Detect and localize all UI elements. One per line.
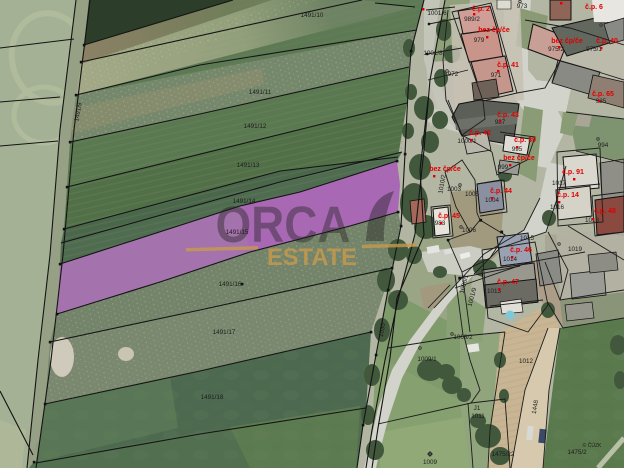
svg-text:1491/16: 1491/16 bbox=[219, 281, 242, 288]
svg-text:1019: 1019 bbox=[568, 246, 583, 253]
svg-text:972: 972 bbox=[448, 71, 459, 78]
svg-text:č.p. 48: č.p. 48 bbox=[594, 208, 616, 215]
svg-text:bez čp/če: bez čp/če bbox=[429, 166, 461, 173]
svg-text:č.p. 39: č.p. 39 bbox=[514, 137, 536, 144]
svg-text:č.p. 46: č.p. 46 bbox=[510, 247, 532, 254]
svg-text:1015: 1015 bbox=[520, 235, 535, 242]
svg-text:1001/6: 1001/6 bbox=[427, 10, 447, 17]
svg-text:975/1: 975/1 bbox=[586, 46, 602, 53]
svg-text:č.p. 41: č.p. 41 bbox=[497, 62, 519, 69]
svg-text:1491/18: 1491/18 bbox=[201, 394, 224, 401]
svg-text:č.p. 45: č.p. 45 bbox=[438, 213, 460, 220]
svg-text:č.p. 47: č.p. 47 bbox=[497, 279, 519, 286]
svg-text:985: 985 bbox=[596, 98, 607, 105]
svg-text:© ČÚZK: © ČÚZK bbox=[583, 442, 602, 449]
svg-text:973: 973 bbox=[517, 3, 528, 10]
svg-text:971: 971 bbox=[491, 72, 502, 79]
svg-text:bez čp/če: bez čp/če bbox=[478, 27, 510, 34]
svg-text:989/2: 989/2 bbox=[464, 16, 480, 23]
svg-text:č.p. 40: č.p. 40 bbox=[596, 38, 618, 45]
svg-text:1003: 1003 bbox=[447, 186, 462, 193]
svg-text:J1: J1 bbox=[474, 405, 481, 412]
svg-text:1491/15: 1491/15 bbox=[226, 229, 249, 236]
svg-text:1012: 1012 bbox=[519, 358, 534, 365]
svg-text:1000/1: 1000/1 bbox=[457, 138, 477, 145]
svg-text:1014: 1014 bbox=[503, 256, 518, 263]
svg-text:č.p. 14: č.p. 14 bbox=[557, 192, 579, 199]
svg-text:č.p. 6: č.p. 6 bbox=[585, 4, 603, 11]
svg-text:bez čp/če: bez čp/če bbox=[551, 38, 583, 45]
svg-text:1475/22: 1475/22 bbox=[492, 451, 515, 458]
svg-text:1491/11: 1491/11 bbox=[249, 89, 272, 96]
svg-text:1009/1: 1009/1 bbox=[417, 356, 437, 363]
svg-text:č.p. 65: č.p. 65 bbox=[592, 91, 614, 98]
svg-text:č.p. 2: č.p. 2 bbox=[472, 6, 490, 13]
svg-text:1475/2: 1475/2 bbox=[567, 449, 587, 456]
svg-text:1491/12: 1491/12 bbox=[244, 123, 267, 130]
svg-text:1001/8: 1001/8 bbox=[423, 50, 443, 57]
svg-text:1016: 1016 bbox=[550, 204, 565, 211]
svg-text:č.p. 91: č.p. 91 bbox=[562, 169, 584, 176]
svg-text:975/2: 975/2 bbox=[548, 46, 564, 53]
svg-text:1006: 1006 bbox=[462, 227, 477, 234]
svg-text:1491/17: 1491/17 bbox=[213, 329, 236, 336]
svg-text:1491/13: 1491/13 bbox=[237, 162, 260, 169]
svg-text:1491/10: 1491/10 bbox=[301, 12, 324, 19]
svg-text:994: 994 bbox=[598, 142, 609, 149]
svg-text:1017: 1017 bbox=[552, 180, 567, 187]
svg-text:ESTATE: ESTATE bbox=[267, 244, 357, 271]
svg-text:1009: 1009 bbox=[423, 459, 438, 466]
svg-text:1008/2: 1008/2 bbox=[453, 334, 473, 341]
svg-text:1491/14: 1491/14 bbox=[233, 198, 256, 205]
svg-text:bez čp/če: bez čp/če bbox=[503, 155, 535, 162]
svg-text:999: 999 bbox=[498, 164, 509, 171]
svg-text:č.p. 43: č.p. 43 bbox=[497, 112, 519, 119]
svg-text:č.p. 44: č.p. 44 bbox=[490, 188, 512, 195]
svg-text:1011: 1011 bbox=[471, 413, 485, 420]
svg-text:č.p. 42: č.p. 42 bbox=[469, 130, 491, 137]
svg-text:979: 979 bbox=[474, 37, 485, 44]
svg-text:1005: 1005 bbox=[465, 191, 480, 198]
